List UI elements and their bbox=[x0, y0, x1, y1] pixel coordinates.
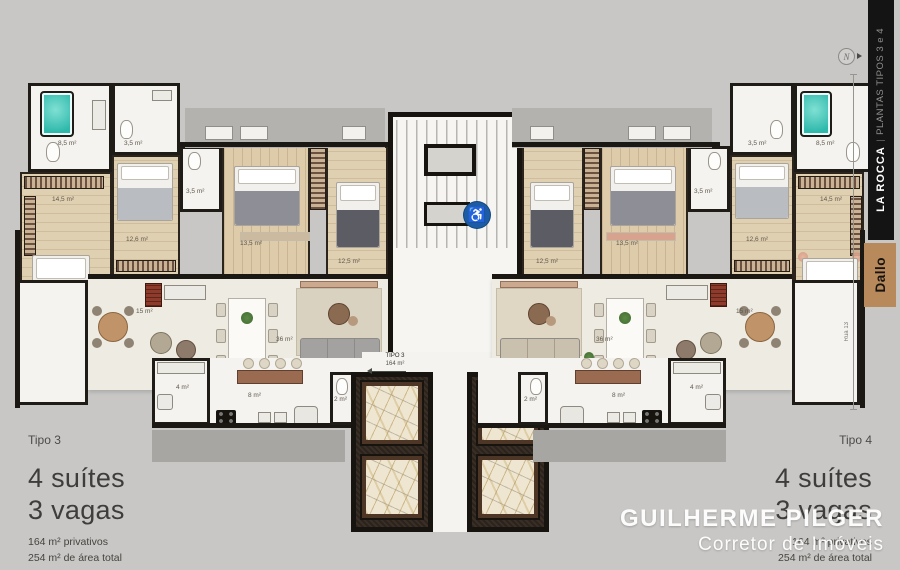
room-area-label: 8,5 m² bbox=[58, 140, 76, 147]
room-area-label: 15 m² bbox=[736, 308, 753, 315]
room-area-label: 8 m² bbox=[612, 392, 625, 399]
lounge-chair-icon bbox=[150, 332, 172, 354]
terrace-chair-icon bbox=[771, 306, 781, 316]
tv-console-icon bbox=[300, 281, 378, 288]
counter-icon bbox=[666, 285, 708, 300]
bar-stool-icon bbox=[291, 358, 302, 369]
bed-icon bbox=[530, 182, 574, 248]
sink-icon bbox=[152, 90, 172, 101]
unit-areas: 164 m² privativos 254 m² de área total bbox=[28, 535, 125, 567]
entry-arrow-line bbox=[372, 371, 406, 372]
room-area-label: 2 m² bbox=[524, 396, 537, 403]
room-area-label: 12,6 m² bbox=[126, 236, 148, 243]
plant-icon bbox=[241, 312, 253, 324]
sidebar-divider: | bbox=[875, 139, 886, 141]
unit-info-left: Tipo 3 4 suítes 3 vagas 164 m² privativo… bbox=[28, 433, 125, 566]
unit-parking: 3 vagas bbox=[28, 494, 125, 526]
dining-chair-icon bbox=[216, 303, 226, 317]
closet-icon bbox=[24, 196, 36, 256]
counter-icon bbox=[673, 362, 721, 374]
bed-icon bbox=[234, 166, 300, 226]
project-brand: LA ROCCA bbox=[875, 146, 887, 212]
bed-icon bbox=[336, 182, 380, 248]
unit-tag-area: 164 m² bbox=[372, 361, 418, 369]
compass-label: N bbox=[843, 52, 849, 62]
room-area-label: 3,5 m² bbox=[186, 188, 204, 195]
lounge-chair-icon bbox=[700, 332, 722, 354]
room-area-label: 8 m² bbox=[248, 392, 261, 399]
bar-stool-icon bbox=[597, 358, 608, 369]
lounge-chair-icon bbox=[676, 340, 696, 360]
ac-unit-icon bbox=[205, 126, 233, 140]
toilet-icon bbox=[188, 152, 201, 170]
elevator-cab-icon bbox=[362, 382, 422, 444]
wall bbox=[492, 274, 792, 279]
grill-icon bbox=[145, 283, 162, 307]
side-table-icon bbox=[546, 316, 556, 326]
unit-name: Tipo 4 bbox=[775, 433, 872, 447]
terrace-chair-icon bbox=[739, 338, 749, 348]
bathtub-left bbox=[40, 91, 74, 137]
street-label: Rua 13 bbox=[844, 322, 850, 341]
bar-stool-icon bbox=[629, 358, 640, 369]
realtor-role: Corretor de Imóveis bbox=[620, 534, 884, 556]
stair-landing bbox=[424, 144, 476, 176]
sheet-subtitle: PLANTAS TIPOS 3 e 4 bbox=[875, 28, 886, 135]
terrace-right bbox=[792, 280, 860, 405]
project-sidebar: LA ROCCA | PLANTAS TIPOS 3 e 4 bbox=[868, 0, 894, 240]
sink-icon bbox=[92, 100, 106, 130]
room-area-label: 15 m² bbox=[136, 308, 153, 315]
terrace-chair-icon bbox=[124, 338, 134, 348]
dining-chair-icon bbox=[268, 303, 278, 317]
counter-icon bbox=[157, 362, 205, 374]
bar-stool-icon bbox=[613, 358, 624, 369]
side-table-icon bbox=[348, 316, 358, 326]
toilet-icon bbox=[708, 152, 721, 170]
street-line-tick bbox=[850, 409, 857, 410]
room-area-label: 2 m² bbox=[334, 396, 347, 403]
roof-slab-left bbox=[152, 430, 345, 462]
unit-tag-tipo3: TIPO 3 164 m² bbox=[372, 353, 418, 368]
bathtub-right bbox=[800, 91, 832, 137]
counter-icon bbox=[164, 285, 206, 300]
toilet-icon bbox=[530, 378, 542, 395]
room-area-label: 14,5 m² bbox=[820, 196, 842, 203]
developer-logo-box: Dallo bbox=[864, 243, 896, 307]
room-area-label: 12,5 m² bbox=[536, 258, 558, 265]
wheelchair-accessibility-icon: ♿ bbox=[464, 202, 490, 228]
elevator-corridor bbox=[433, 372, 467, 532]
unit-total-area: 254 m² de área total bbox=[28, 551, 125, 567]
closet-icon bbox=[24, 176, 104, 189]
grill-icon bbox=[710, 283, 727, 307]
dining-chair-icon bbox=[646, 329, 656, 343]
unit-suites: 4 suítes bbox=[775, 462, 872, 494]
terrace-chair-icon bbox=[92, 306, 102, 316]
room-area-label: 14,5 m² bbox=[52, 196, 74, 203]
developer-logo: Dallo bbox=[873, 257, 888, 293]
wheelchair-glyph: ♿ bbox=[468, 206, 487, 224]
realtor-name: GUILHERME PILGER bbox=[620, 505, 884, 533]
room-area-label: 13,5 m² bbox=[240, 240, 262, 247]
closet-icon bbox=[584, 148, 600, 210]
room-area-label: 12,6 m² bbox=[746, 236, 768, 243]
room-area-label: 13,5 m² bbox=[616, 240, 638, 247]
room-area-label: 36 m² bbox=[276, 336, 293, 343]
compass-north-icon: N bbox=[838, 48, 855, 65]
roof-slab-right bbox=[533, 430, 726, 462]
bar-stool-icon bbox=[275, 358, 286, 369]
room-area-label: 12,5 m² bbox=[338, 258, 360, 265]
kitchen-sink-icon bbox=[623, 412, 636, 423]
floorplan-sheet: ♿ TIPO 3 164 m² TIPO 4 164 m² bbox=[0, 0, 900, 570]
bed-icon bbox=[735, 163, 789, 219]
toilet-icon bbox=[336, 378, 348, 395]
dining-chair-icon bbox=[594, 303, 604, 317]
bar-counter-icon bbox=[575, 370, 641, 384]
unit-tag-name: TIPO 3 bbox=[372, 353, 418, 361]
lounge-chair-icon bbox=[176, 340, 196, 360]
closet-icon bbox=[798, 176, 860, 189]
terrace-table-icon bbox=[745, 312, 775, 342]
kitchen-sink-icon bbox=[607, 412, 620, 423]
bar-stool-icon bbox=[243, 358, 254, 369]
ac-unit-icon bbox=[240, 126, 268, 140]
compass-arrow-icon bbox=[857, 53, 862, 59]
bar-counter-icon bbox=[237, 370, 303, 384]
room-area-label: 8,5 m² bbox=[816, 140, 834, 147]
kitchen-sink-icon bbox=[258, 412, 271, 423]
bed-icon bbox=[117, 163, 173, 221]
dining-chair-icon bbox=[216, 329, 226, 343]
washer-icon bbox=[705, 394, 721, 410]
ac-unit-icon bbox=[663, 126, 691, 140]
room-area-label: 3,5 m² bbox=[694, 188, 712, 195]
room-area-label: 3,5 m² bbox=[748, 140, 766, 147]
ac-unit-icon bbox=[628, 126, 656, 140]
wall bbox=[88, 274, 388, 279]
plant-icon bbox=[619, 312, 631, 324]
toilet-icon bbox=[770, 120, 783, 139]
street-line-tick bbox=[850, 74, 857, 75]
street-line bbox=[853, 74, 854, 410]
closet-icon bbox=[734, 260, 790, 272]
wall bbox=[180, 142, 388, 147]
washer-icon bbox=[157, 394, 173, 410]
ac-unit-icon bbox=[342, 126, 366, 140]
coffee-table-icon bbox=[328, 303, 350, 325]
bar-stool-icon bbox=[581, 358, 592, 369]
stairs-icon bbox=[396, 120, 514, 248]
entry-arrow-left-icon bbox=[367, 368, 372, 374]
wall bbox=[476, 423, 726, 428]
room-area-label: 4 m² bbox=[176, 384, 189, 391]
wall bbox=[15, 230, 20, 408]
room-area-label: 36 m² bbox=[596, 336, 613, 343]
closet-icon bbox=[310, 148, 326, 210]
terrace-chair-icon bbox=[771, 338, 781, 348]
realtor-watermark: GUILHERME PILGER Corretor de Imóveis bbox=[620, 505, 884, 556]
project-sidebar-text: LA ROCCA | PLANTAS TIPOS 3 e 4 bbox=[872, 28, 890, 212]
room-area-label: 4 m² bbox=[690, 384, 703, 391]
dining-chair-icon bbox=[646, 303, 656, 317]
elevator-cab-icon bbox=[478, 456, 538, 518]
unit-private-area: 164 m² privativos bbox=[28, 535, 125, 551]
terrace-table-icon bbox=[98, 312, 128, 342]
room-area-label: 3,5 m² bbox=[124, 140, 142, 147]
bed-icon bbox=[610, 166, 676, 226]
tv-console-icon bbox=[500, 281, 578, 288]
terrace-chair-icon bbox=[92, 338, 102, 348]
terrace-left bbox=[15, 280, 88, 405]
ac-unit-icon bbox=[530, 126, 554, 140]
closet-icon bbox=[116, 260, 176, 272]
unit-suites: 4 suítes bbox=[28, 462, 125, 494]
kitchen-sink-icon bbox=[274, 412, 287, 423]
bar-stool-icon bbox=[259, 358, 270, 369]
unit-name: Tipo 3 bbox=[28, 433, 125, 447]
toilet-icon bbox=[120, 120, 133, 139]
terrace-chair-icon bbox=[124, 306, 134, 316]
bathroom-3-left bbox=[180, 146, 222, 212]
wall bbox=[512, 142, 720, 147]
elevator-cab-icon bbox=[362, 456, 422, 518]
